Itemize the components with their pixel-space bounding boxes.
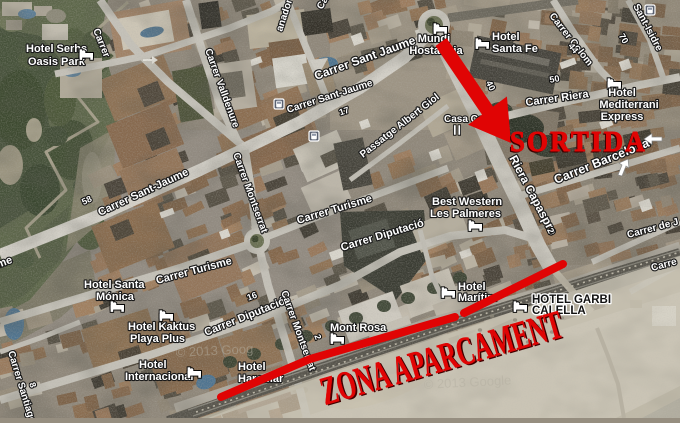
svg-text:Express: Express bbox=[601, 111, 644, 123]
svg-text:Internacional: Internacional bbox=[125, 371, 193, 383]
svg-text:Oasis Park: Oasis Park bbox=[28, 56, 86, 68]
svg-text:Mont Rosa: Mont Rosa bbox=[330, 322, 387, 334]
svg-text:Hotel: Hotel bbox=[139, 359, 167, 371]
svg-text:Mónica: Mónica bbox=[96, 291, 135, 303]
svg-text:Hotel Serhs: Hotel Serhs bbox=[26, 43, 87, 55]
svg-text:Hotel: Hotel bbox=[608, 87, 636, 99]
svg-text:Hotel Kaktus: Hotel Kaktus bbox=[128, 321, 195, 333]
svg-text:Best Western: Best Western bbox=[432, 196, 502, 208]
svg-text:Hotel: Hotel bbox=[492, 31, 520, 43]
svg-text:Hotel: Hotel bbox=[238, 361, 266, 373]
svg-text:Les Palmeres: Les Palmeres bbox=[430, 208, 501, 220]
svg-text:Hotel Santa: Hotel Santa bbox=[84, 279, 145, 291]
svg-text:SORTIDA: SORTIDA bbox=[510, 126, 647, 158]
svg-text:Santa Fe: Santa Fe bbox=[492, 43, 538, 55]
svg-text:Mediterrani: Mediterrani bbox=[599, 99, 658, 111]
svg-text:50: 50 bbox=[549, 73, 561, 85]
svg-text:Playa Plus: Playa Plus bbox=[130, 333, 185, 345]
